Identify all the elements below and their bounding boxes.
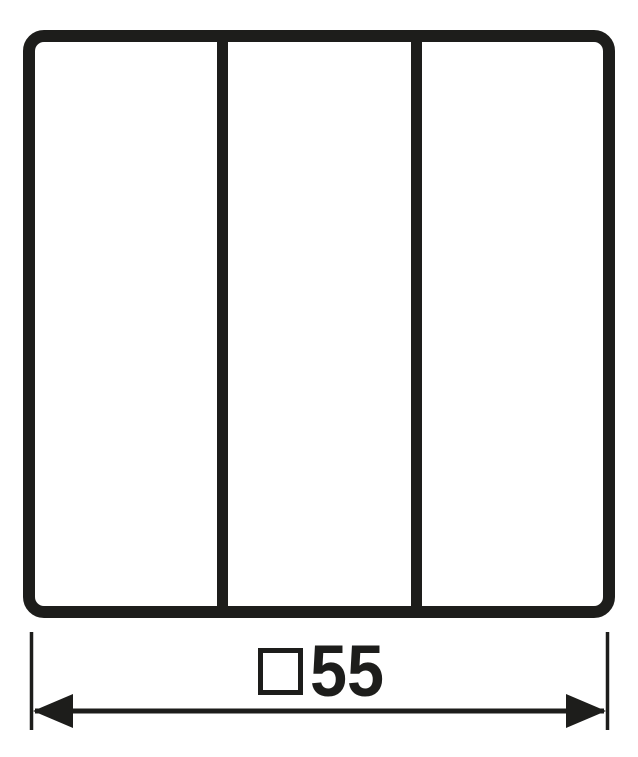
arrowhead-right-icon	[566, 694, 606, 728]
arrowhead-left-icon	[33, 694, 73, 728]
dimension-drawing: 55	[0, 0, 638, 757]
plate-outline	[29, 36, 609, 612]
square-symbol-icon	[261, 651, 301, 693]
drawing-svg: 55	[0, 0, 638, 757]
dimension-value: 55	[310, 631, 384, 712]
